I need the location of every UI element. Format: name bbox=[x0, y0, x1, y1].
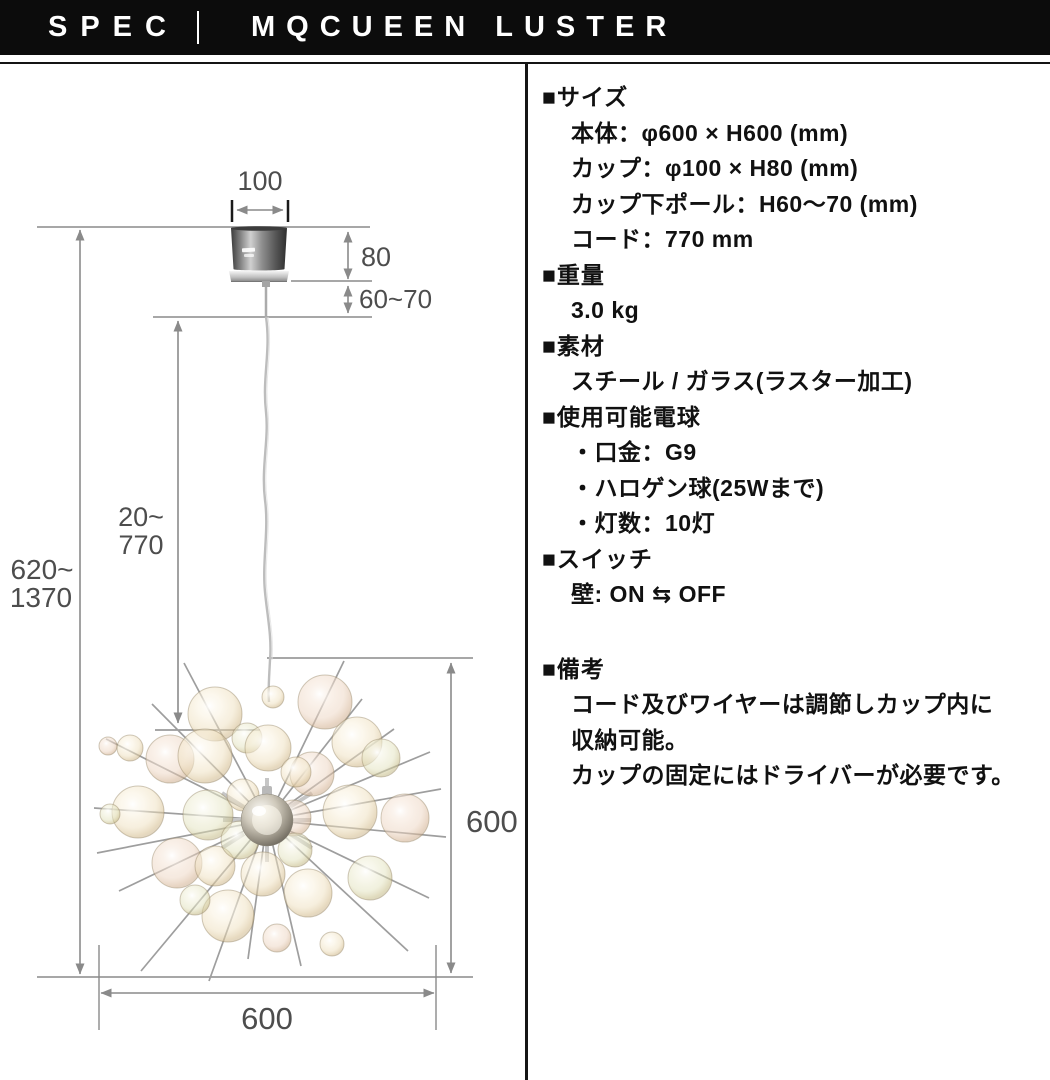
dim-canopy-width: 100 bbox=[232, 166, 288, 222]
header-bar: SPEC MQCUEEN LUSTER bbox=[0, 0, 1050, 55]
spec-line-cup: カップ：φ100 × H80 (mm) bbox=[542, 151, 1040, 187]
section-title-weight: ■重量 bbox=[542, 258, 1040, 294]
spec-line-body: 本体：φ600 × H600 (mm) bbox=[542, 116, 1040, 152]
dim-cord-range: 20~ 770 bbox=[118, 321, 178, 723]
spec-line-note-2: 収納可能。 bbox=[542, 723, 1040, 759]
spec-panel: ■サイズ 本体：φ600 × H600 (mm) カップ：φ100 × H80 … bbox=[528, 62, 1048, 794]
spec-line-note-3: カップの固定にはドライバーが必要です。 bbox=[542, 758, 1040, 794]
header-divider bbox=[197, 11, 199, 44]
spec-line-material: スチール / ガラス(ラスター加工) bbox=[542, 364, 1040, 400]
label-canopy-width: 100 bbox=[237, 166, 282, 196]
label-pole-length: 60~70 bbox=[359, 284, 432, 314]
cord-ferrule bbox=[262, 281, 270, 287]
dimension-diagram: 100 80 60~70 20~ 770 bbox=[0, 62, 526, 1080]
label-body-width: 600 bbox=[241, 1001, 293, 1036]
dim-canopy-height: 80 bbox=[348, 232, 391, 279]
section-title-switch: ■スイッチ bbox=[542, 542, 1040, 578]
spec-line-socket: ・口金：G9 bbox=[542, 435, 1040, 471]
dim-overall-range: 620~ 1370 bbox=[10, 230, 80, 974]
label-body-height: 600 bbox=[466, 804, 518, 839]
label-cord-range-top: 20~ bbox=[118, 502, 164, 532]
hanging-cord bbox=[264, 317, 273, 702]
spec-line-count: ・灯数：10灯 bbox=[542, 506, 1040, 542]
spec-line-halogen: ・ハロゲン球(25Wまで) bbox=[542, 471, 1040, 507]
label-canopy-height: 80 bbox=[361, 242, 391, 272]
spec-line-cord: コード：770 mm bbox=[542, 222, 1040, 258]
header-product-name: MQCUEEN LUSTER bbox=[251, 11, 677, 44]
spec-line-switch: 壁: ON ⇆ OFF bbox=[542, 577, 1040, 613]
spec-line-note-1: コード及びワイヤーは調節しカップ内に bbox=[542, 687, 1040, 723]
dim-pole-length: 60~70 bbox=[348, 284, 432, 314]
header-spec-label: SPEC bbox=[48, 11, 179, 44]
section-title-notes: ■備考 bbox=[542, 652, 1040, 688]
canopy-label-mark bbox=[242, 248, 255, 253]
section-title-bulb: ■使用可能電球 bbox=[542, 400, 1040, 436]
label-overall-range-bottom: 1370 bbox=[10, 582, 72, 613]
canopy-cup bbox=[229, 226, 289, 317]
label-cord-range-bottom: 770 bbox=[118, 530, 163, 560]
spec-line-weight: 3.0 kg bbox=[542, 293, 1040, 329]
label-overall-range-top: 620~ bbox=[10, 554, 73, 585]
dim-body-width: 600 bbox=[101, 993, 434, 1036]
spec-sheet: SPEC MQCUEEN LUSTER bbox=[0, 0, 1050, 1080]
chandelier-illustration bbox=[94, 661, 446, 981]
section-title-size: ■サイズ bbox=[542, 80, 1040, 116]
spec-line-pole: カップ下ポール：H60～70 (mm) bbox=[542, 187, 1040, 223]
dim-body-height: 600 bbox=[451, 663, 518, 973]
section-title-material: ■素材 bbox=[542, 329, 1040, 365]
